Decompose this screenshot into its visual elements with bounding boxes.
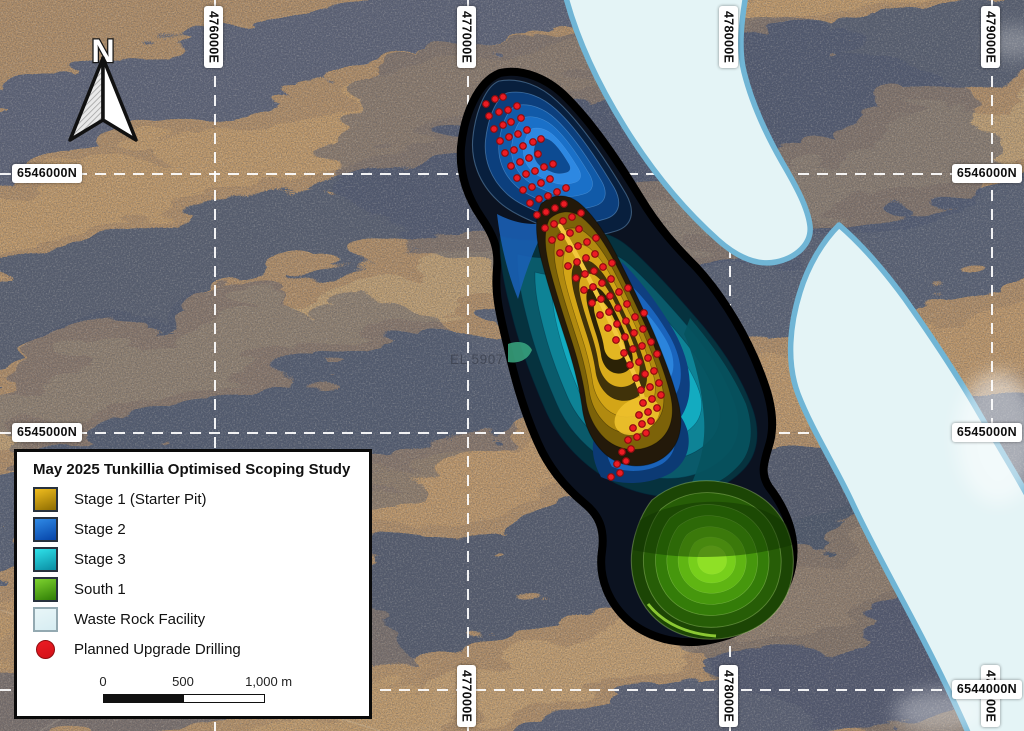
drill-point — [584, 239, 591, 246]
drill-point — [532, 168, 539, 175]
drill-point — [654, 405, 661, 412]
drill-point — [625, 285, 632, 292]
drill-point — [632, 314, 639, 321]
legend-item-south1: South 1 — [33, 574, 355, 604]
drill-point — [520, 143, 527, 150]
drilling-dot-swatch — [36, 640, 55, 659]
drill-point — [497, 138, 504, 145]
drill-point — [502, 150, 509, 157]
drill-point — [636, 359, 643, 366]
drill-point — [640, 326, 647, 333]
northing-label-right: 6545000N — [952, 423, 1022, 442]
drill-point — [545, 193, 552, 200]
drill-point — [565, 263, 572, 270]
drill-point — [554, 189, 561, 196]
drill-point — [505, 107, 512, 114]
drill-point — [524, 127, 531, 134]
drill-point — [538, 136, 545, 143]
drill-point — [616, 289, 623, 296]
legend-item-stage1: Stage 1 (Starter Pit) — [33, 484, 355, 514]
drill-point — [645, 409, 652, 416]
drill-point — [592, 251, 599, 258]
north-arrow: N — [55, 28, 151, 148]
drill-point — [623, 458, 630, 465]
drill-point — [619, 449, 626, 456]
drill-point — [514, 175, 521, 182]
stage1-swatch — [33, 487, 58, 512]
drill-point — [557, 250, 564, 257]
drill-point — [547, 176, 554, 183]
drill-point — [641, 310, 648, 317]
legend-title: May 2025 Tunkillia Optimised Scoping Stu… — [33, 461, 355, 478]
map-canvas: 476000E477000E477000E478000E478000E47900… — [0, 0, 1024, 731]
drill-point — [541, 164, 548, 171]
scale-tick-1000: 1,000 m — [245, 674, 292, 689]
drill-point — [648, 418, 655, 425]
drill-point — [622, 334, 629, 341]
drill-point — [517, 159, 524, 166]
drill-point — [598, 296, 605, 303]
drill-point — [558, 234, 565, 241]
scale-bar: 0 500 1,000 m — [103, 674, 263, 714]
drill-point — [569, 214, 576, 221]
south1-swatch — [33, 577, 58, 602]
drill-point — [550, 161, 557, 168]
drill-point — [600, 264, 607, 271]
easting-label-bottom: 478000E — [719, 665, 738, 727]
drill-point — [636, 412, 643, 419]
drill-point — [608, 276, 615, 283]
drill-point — [642, 371, 649, 378]
drill-point — [630, 425, 637, 432]
drill-point — [530, 139, 537, 146]
drill-point — [583, 255, 590, 262]
drill-point — [645, 355, 652, 362]
drill-point — [538, 180, 545, 187]
drill-point — [520, 187, 527, 194]
drill-point — [542, 225, 549, 232]
drill-point — [649, 396, 656, 403]
drill-point — [631, 330, 638, 337]
drill-point — [551, 221, 558, 228]
stage2-swatch — [33, 517, 58, 542]
drill-point — [523, 171, 530, 178]
drill-point — [589, 300, 596, 307]
drill-point — [606, 309, 613, 316]
drill-point — [651, 368, 658, 375]
drill-point — [621, 350, 628, 357]
drill-point — [534, 212, 541, 219]
easting-label-top: 476000E — [204, 6, 223, 68]
legend-item-waste-rock: Waste Rock Facility — [33, 604, 355, 634]
drill-point — [563, 185, 570, 192]
drill-point — [496, 109, 503, 116]
tenement-label: EL 5907 — [450, 352, 504, 367]
drill-point — [581, 287, 588, 294]
drill-point — [582, 271, 589, 278]
drill-point — [515, 131, 522, 138]
drill-point — [492, 96, 499, 103]
drill-point — [656, 380, 663, 387]
drill-point — [500, 122, 507, 129]
northing-label-left: 6546000N — [12, 164, 82, 183]
drill-point — [574, 259, 581, 266]
drill-point — [609, 260, 616, 267]
drill-point — [486, 113, 493, 120]
easting-label-top: 477000E — [457, 6, 476, 68]
drill-point — [658, 392, 665, 399]
drill-point — [639, 421, 646, 428]
drill-point — [483, 101, 490, 108]
drill-point — [590, 284, 597, 291]
scale-bar-graphic — [103, 694, 265, 703]
drill-point — [500, 94, 507, 101]
scale-tick-500: 500 — [172, 674, 194, 689]
drill-point — [508, 119, 515, 126]
drill-point — [640, 400, 647, 407]
drill-point — [491, 126, 498, 133]
drill-point — [597, 312, 604, 319]
drill-point — [593, 235, 600, 242]
drill-point — [561, 201, 568, 208]
drill-point — [514, 103, 521, 110]
drill-point — [607, 293, 614, 300]
legend-item-drilling: Planned Upgrade Drilling — [33, 634, 355, 664]
drill-point — [526, 155, 533, 162]
easting-label-bottom: 477000E — [457, 665, 476, 727]
drill-point — [647, 384, 654, 391]
drill-point — [608, 474, 615, 481]
drill-point — [617, 470, 624, 477]
easting-label-top: 478000E — [719, 6, 738, 68]
drill-point — [615, 305, 622, 312]
drill-point — [535, 151, 542, 158]
drill-point — [614, 461, 621, 468]
stage3-swatch — [33, 547, 58, 572]
drill-point — [614, 321, 621, 328]
drill-point — [625, 437, 632, 444]
northing-label-right: 6546000N — [952, 164, 1022, 183]
drill-point — [567, 230, 574, 237]
drill-point — [639, 343, 646, 350]
easting-label-top: 479000E — [981, 6, 1000, 68]
drill-point — [529, 184, 536, 191]
drill-point — [599, 280, 606, 287]
drill-point — [576, 226, 583, 233]
northing-label-right: 6544000N — [952, 680, 1022, 699]
drill-point — [613, 337, 620, 344]
drill-point — [630, 346, 637, 353]
drill-point — [634, 434, 641, 441]
drill-point — [575, 243, 582, 250]
drill-point — [566, 246, 573, 253]
drill-point — [624, 301, 631, 308]
drill-point — [623, 318, 630, 325]
legend: May 2025 Tunkillia Optimised Scoping Stu… — [14, 449, 372, 719]
legend-item-stage3: Stage 3 — [33, 544, 355, 574]
drill-point — [591, 268, 598, 275]
drill-point — [527, 200, 534, 207]
drill-point — [518, 115, 525, 122]
drill-point — [605, 325, 612, 332]
drill-point — [628, 446, 635, 453]
drill-point — [643, 430, 650, 437]
drill-point — [578, 210, 585, 217]
legend-item-stage2: Stage 2 — [33, 514, 355, 544]
drill-point — [560, 218, 567, 225]
northing-label-left: 6545000N — [12, 423, 82, 442]
north-arrow-glyph — [70, 58, 136, 140]
drill-point — [549, 237, 556, 244]
drill-point — [552, 205, 559, 212]
drill-point — [638, 387, 645, 394]
drill-point — [511, 147, 518, 154]
drill-point — [633, 375, 640, 382]
drill-point — [508, 163, 515, 170]
waste-rock-swatch — [33, 607, 58, 632]
drill-point — [654, 351, 661, 358]
drill-point — [573, 275, 580, 282]
drill-point — [543, 209, 550, 216]
drill-point — [627, 362, 634, 369]
drill-point — [536, 196, 543, 203]
drill-point — [506, 134, 513, 141]
scale-tick-0: 0 — [99, 674, 106, 689]
drill-point — [648, 339, 655, 346]
